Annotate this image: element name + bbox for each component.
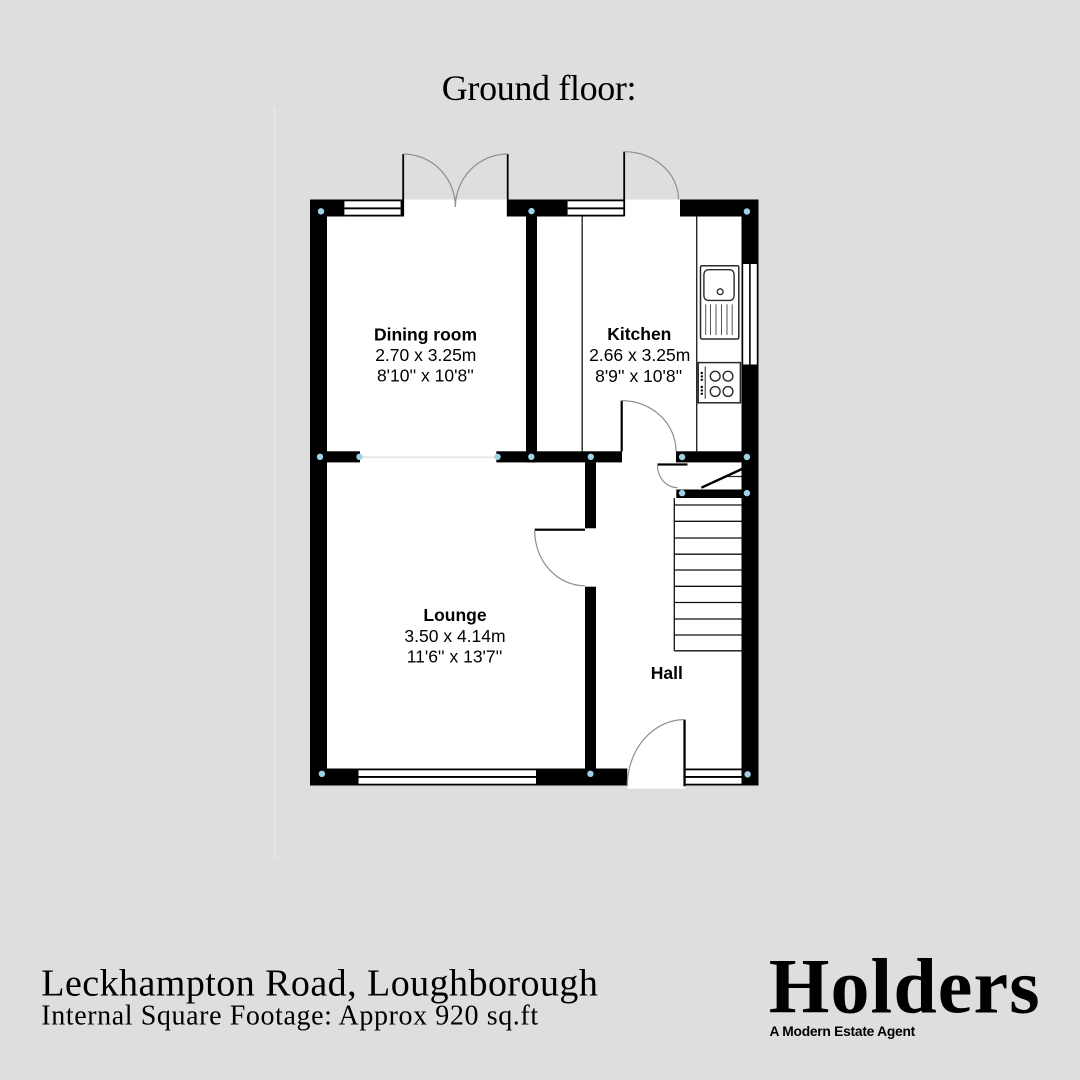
svg-text:11'6'' x 13'7'': 11'6'' x 13'7'' — [407, 646, 503, 666]
svg-text:Internal Square Footage: Appro: Internal Square Footage: Approx 920 sq.f… — [41, 1001, 538, 1032]
svg-text:8'10'' x 10'8'': 8'10'' x 10'8'' — [377, 366, 474, 386]
svg-text:8'9'' x 10'8'': 8'9'' x 10'8'' — [595, 366, 682, 386]
svg-text:Dining room: Dining room — [374, 325, 477, 345]
svg-text:Holders: Holders — [769, 943, 1041, 1030]
svg-text:A Modern Estate Agent: A Modern Estate Agent — [770, 1024, 916, 1039]
svg-text:Hall: Hall — [651, 663, 683, 683]
svg-text:Ground floor:: Ground floor: — [442, 68, 636, 108]
svg-text:2.70 x 3.25m: 2.70 x 3.25m — [375, 345, 476, 365]
svg-text:Leckhampton Road, Loughborough: Leckhampton Road, Loughborough — [41, 962, 598, 1004]
svg-text:2.66 x 3.25m: 2.66 x 3.25m — [589, 345, 690, 365]
svg-text:Lounge: Lounge — [423, 605, 486, 625]
svg-text:Kitchen: Kitchen — [607, 324, 671, 344]
svg-text:3.50 x 4.14m: 3.50 x 4.14m — [404, 626, 505, 646]
